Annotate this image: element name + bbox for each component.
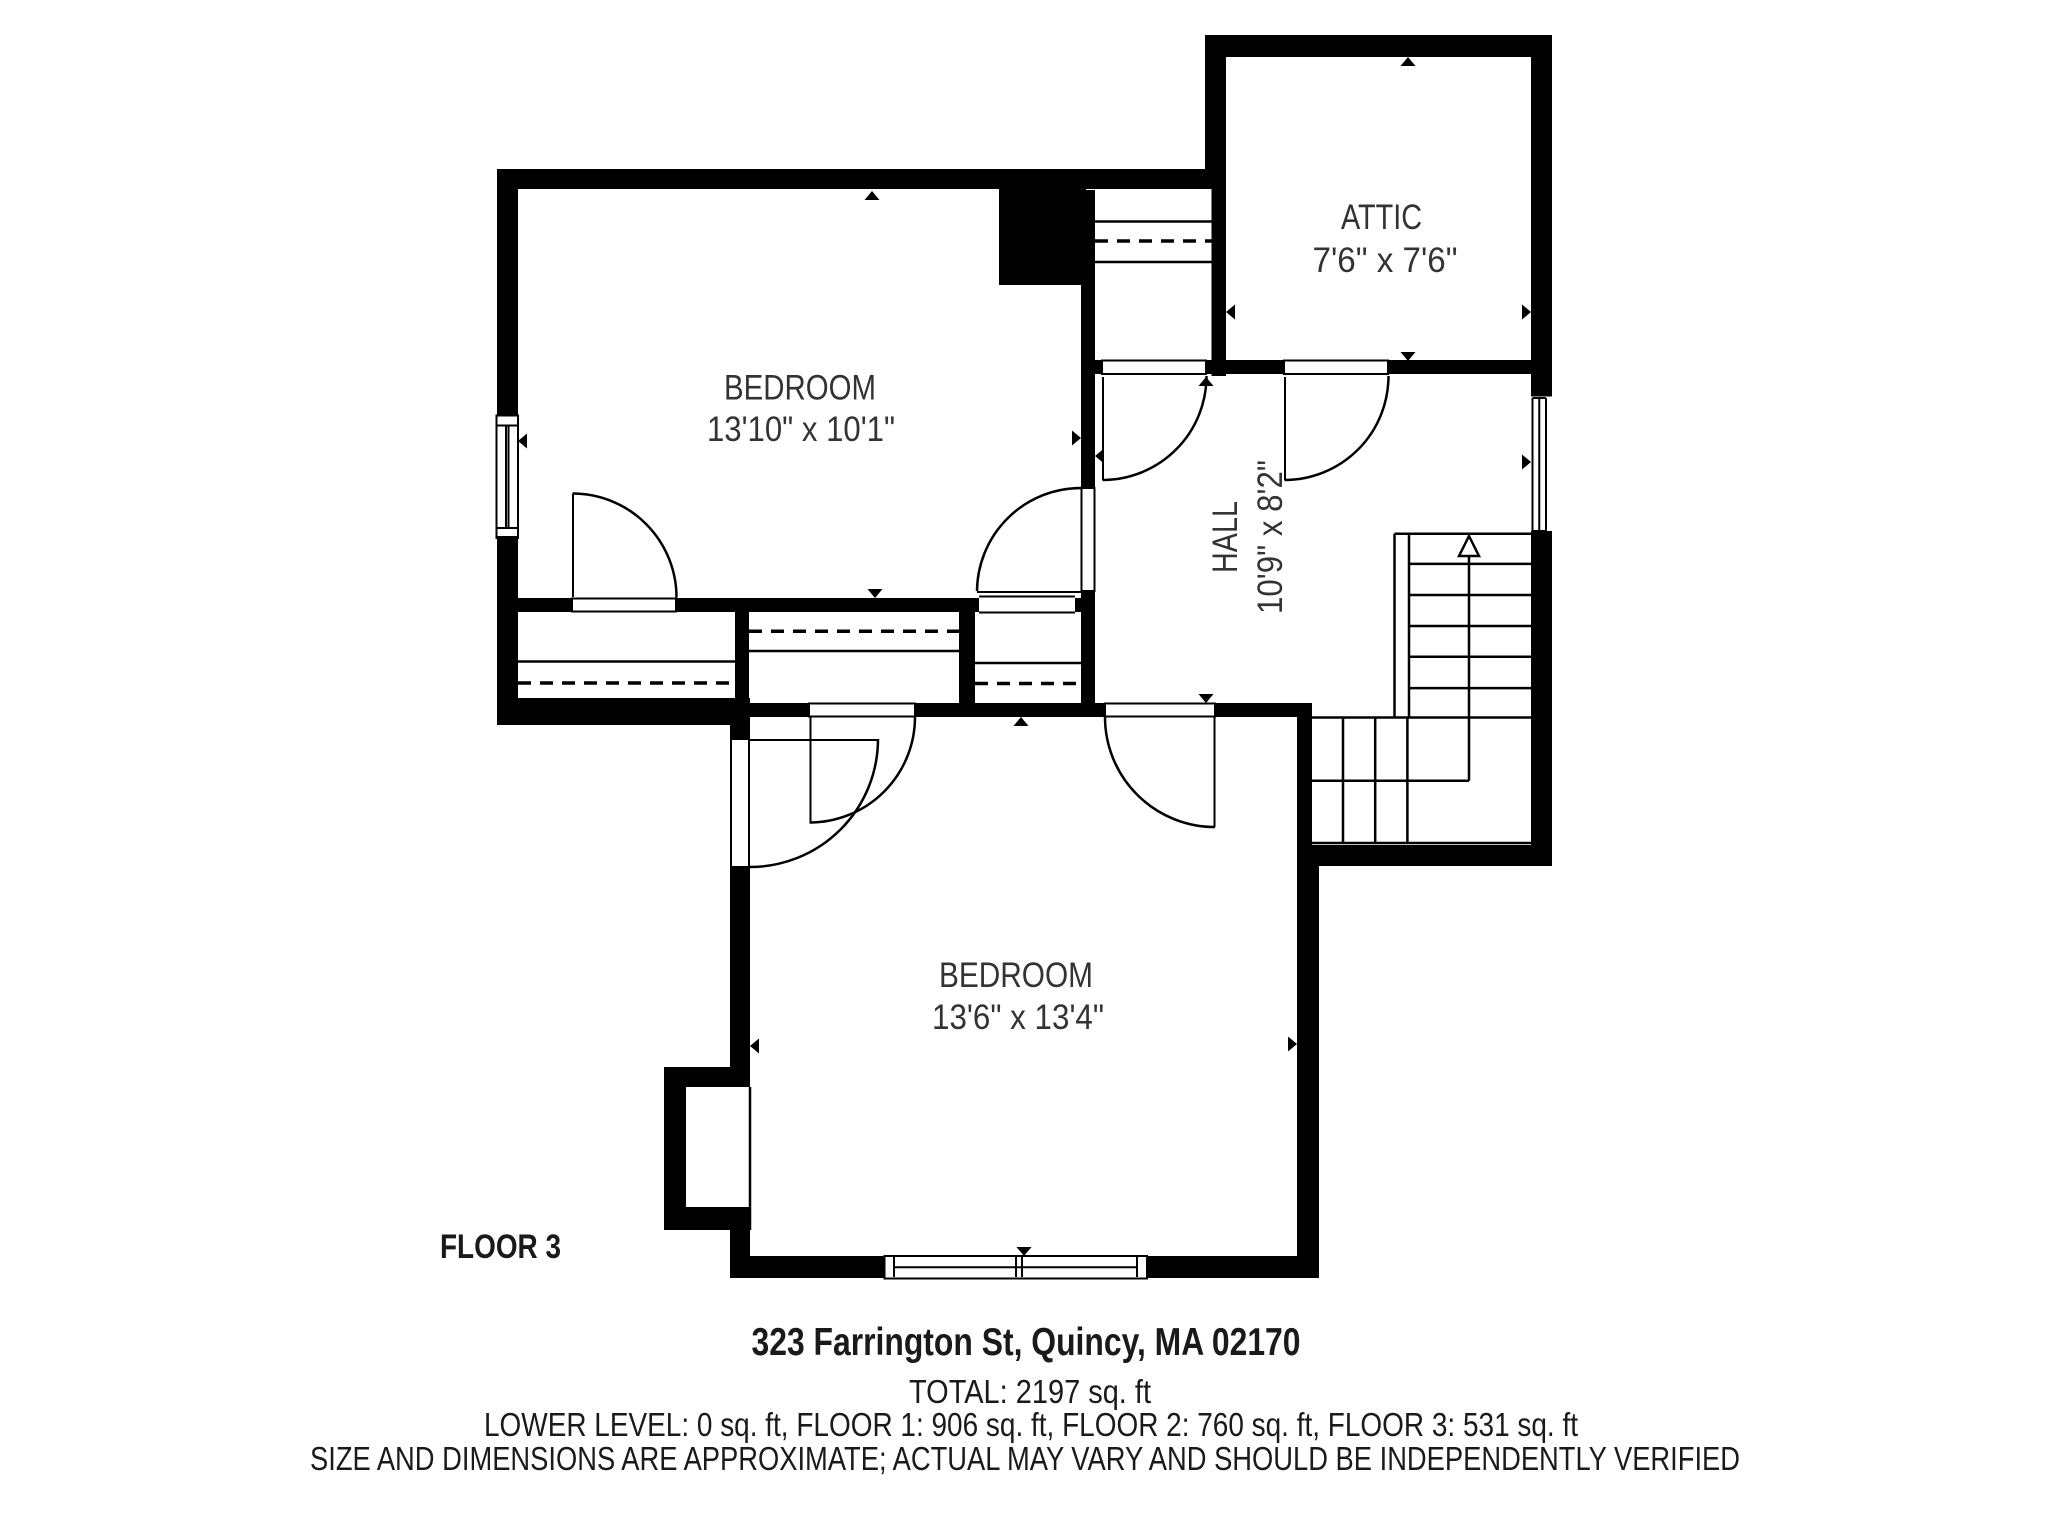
svg-text:SIZE AND DIMENSIONS ARE APPROX: SIZE AND DIMENSIONS ARE APPROXIMATE; ACT… — [310, 1440, 1740, 1477]
svg-text:HALL: HALL — [1206, 501, 1245, 573]
svg-text:10'9" x 8'2": 10'9" x 8'2" — [1251, 460, 1290, 614]
svg-text:TOTAL: 2197 sq. ft: TOTAL: 2197 sq. ft — [909, 1373, 1151, 1410]
svg-text:13'10" x 10'1": 13'10" x 10'1" — [707, 410, 895, 449]
svg-text:LOWER LEVEL: 0 sq. ft, FLOOR 1: LOWER LEVEL: 0 sq. ft, FLOOR 1: 906 sq. … — [484, 1406, 1578, 1443]
svg-text:ATTIC: ATTIC — [1341, 198, 1422, 237]
svg-text:7'6" x 7'6": 7'6" x 7'6" — [1313, 241, 1458, 280]
svg-text:13'6" x 13'4": 13'6" x 13'4" — [932, 998, 1104, 1037]
svg-text:BEDROOM: BEDROOM — [939, 956, 1093, 995]
svg-text:FLOOR 3: FLOOR 3 — [440, 1228, 561, 1266]
svg-text:BEDROOM: BEDROOM — [724, 368, 876, 407]
svg-text:323 Farrington St, Quincy, MA: 323 Farrington St, Quincy, MA 02170 — [752, 1321, 1301, 1364]
